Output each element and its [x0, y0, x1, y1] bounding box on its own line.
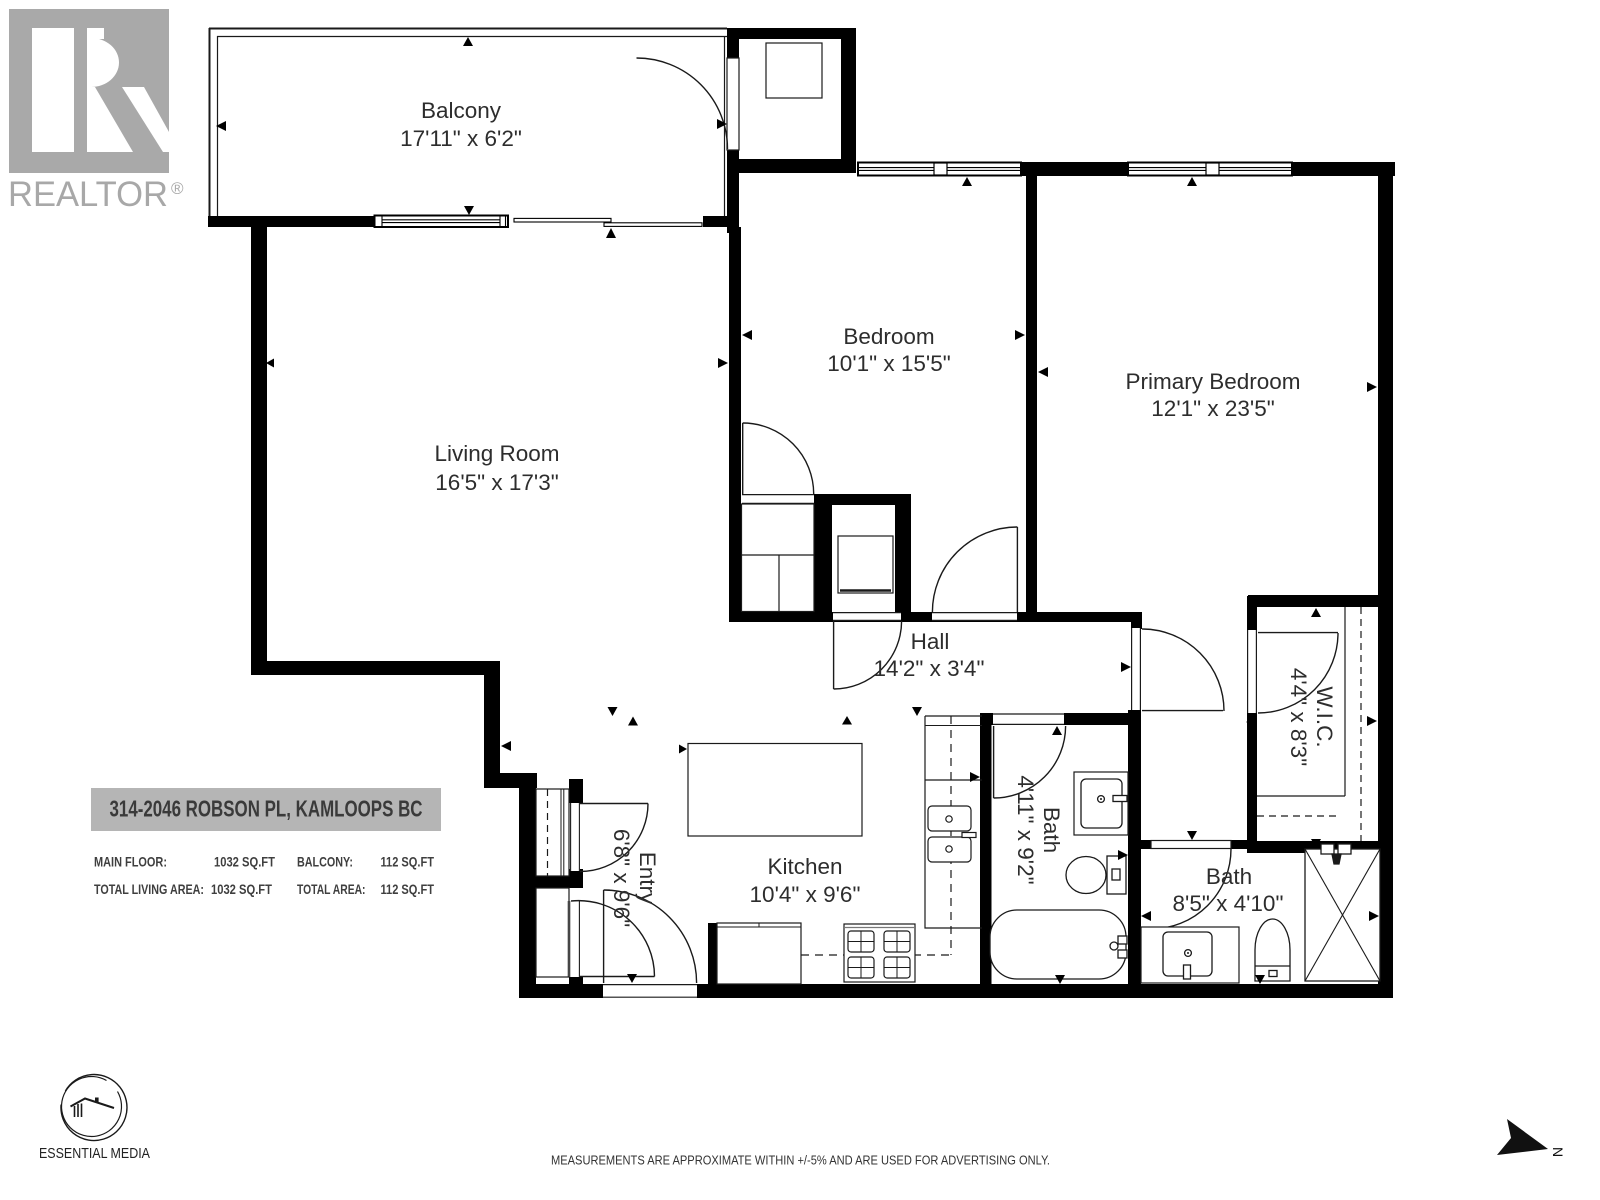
svg-text:MAIN FLOOR:: MAIN FLOOR: — [94, 854, 167, 870]
svg-text:BALCONY:: BALCONY: — [297, 854, 353, 870]
svg-text:Bath: Bath — [1206, 864, 1252, 889]
svg-text:10'4" x 9'6": 10'4" x 9'6" — [750, 882, 861, 907]
svg-text:14'2" x 3'4": 14'2" x 3'4" — [874, 656, 985, 681]
svg-text:Kitchen: Kitchen — [767, 854, 842, 879]
svg-text:N: N — [1550, 1147, 1566, 1157]
svg-text:Bedroom: Bedroom — [843, 324, 934, 349]
svg-text:Living Room: Living Room — [434, 441, 559, 466]
svg-text:4'4" x 8'3": 4'4" x 8'3" — [1286, 668, 1311, 766]
svg-text:16'5" x 17'3": 16'5" x 17'3" — [435, 470, 558, 495]
svg-text:®: ® — [171, 179, 184, 198]
svg-text:MEASUREMENTS ARE APPROXIMATE W: MEASUREMENTS ARE APPROXIMATE WITHIN +/-5… — [551, 1154, 1050, 1168]
svg-text:Bath: Bath — [1039, 807, 1064, 853]
svg-text:Hall: Hall — [911, 629, 950, 654]
svg-text:112 SQ.FT: 112 SQ.FT — [381, 881, 435, 897]
svg-text:1032 SQ.FT: 1032 SQ.FT — [211, 881, 272, 897]
svg-text:8'5" x 4'10": 8'5" x 4'10" — [1173, 891, 1284, 916]
svg-text:17'11" x 6'2": 17'11" x 6'2" — [400, 126, 522, 151]
svg-text:TOTAL LIVING AREA:: TOTAL LIVING AREA: — [94, 881, 204, 897]
svg-text:Primary Bedroom: Primary Bedroom — [1125, 369, 1300, 394]
svg-text:REALTOR: REALTOR — [8, 175, 168, 214]
svg-text:10'1" x 15'5": 10'1" x 15'5" — [827, 351, 950, 376]
svg-text:W.I.C.: W.I.C. — [1312, 686, 1337, 747]
svg-text:12'1" x 23'5": 12'1" x 23'5" — [1151, 396, 1274, 421]
svg-text:6'8" x 9'6": 6'8" x 9'6" — [609, 829, 634, 927]
svg-text:112 SQ.FT: 112 SQ.FT — [381, 854, 435, 870]
svg-text:ESSENTIAL MEDIA: ESSENTIAL MEDIA — [39, 1146, 150, 1162]
svg-text:Balcony: Balcony — [421, 98, 502, 123]
svg-text:314-2046 ROBSON PL, KAMLOOPS B: 314-2046 ROBSON PL, KAMLOOPS BC — [110, 796, 423, 822]
svg-text:TOTAL AREA:: TOTAL AREA: — [297, 881, 366, 897]
svg-text:4'11" x 9'2": 4'11" x 9'2" — [1013, 775, 1038, 884]
svg-text:1032 SQ.FT: 1032 SQ.FT — [214, 854, 275, 870]
svg-text:Entry: Entry — [635, 852, 660, 905]
